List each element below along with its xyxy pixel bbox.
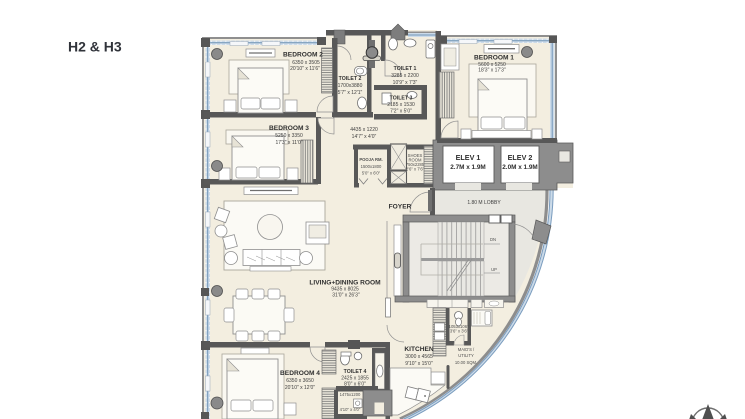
svg-text:31'0" x 26'3": 31'0" x 26'3" [332,293,360,299]
svg-text:UTILITY: UTILITY [458,353,474,358]
svg-text:1500x1800: 1500x1800 [361,164,382,169]
svg-text:3000 x 4565: 3000 x 4565 [405,354,433,360]
svg-text:POOJA RM.: POOJA RM. [359,157,382,162]
svg-text:17'3" x 11'0": 17'3" x 11'0" [275,140,302,146]
svg-text:FOYER: FOYER [389,204,412,211]
svg-text:14'7" x 4'0": 14'7" x 4'0" [352,134,377,140]
svg-text:10.00 SQM.: 10.00 SQM. [455,360,477,365]
svg-text:2.0M x 1.9M: 2.0M x 1.9M [502,164,538,171]
svg-text:5'7" x 12'1": 5'7" x 12'1" [338,90,363,96]
svg-text:1.80 M LOBBY: 1.80 M LOBBY [467,200,501,206]
svg-text:8'0" x 6'0": 8'0" x 6'0" [344,382,366,388]
svg-text:TOILET 1: TOILET 1 [394,66,417,72]
svg-text:TOILET 3: TOILET 3 [390,96,413,102]
svg-text:KITCHEN: KITCHEN [404,346,434,353]
svg-text:9'10" x 15'0": 9'10" x 15'0" [405,361,433,367]
svg-text:LIVING+DINING ROOM: LIVING+DINING ROOM [309,280,381,287]
svg-text:4'10" x 4'0": 4'10" x 4'0" [340,407,361,412]
svg-text:18'3" x 17'3": 18'3" x 17'3" [478,68,506,74]
svg-text:4435 x 1220: 4435 x 1220 [350,127,378,133]
svg-text:2'6" x 7'6": 2'6" x 7'6" [406,167,425,172]
svg-text:1475x1200: 1475x1200 [340,392,361,397]
svg-text:TOILET 2: TOILET 2 [339,76,362,82]
svg-text:1700x3880: 1700x3880 [338,83,363,89]
svg-text:20'10" x 12'0": 20'10" x 12'0" [285,385,315,391]
svg-text:BEDROOM 4: BEDROOM 4 [280,370,320,377]
svg-text:2185 x 1530: 2185 x 1530 [387,102,415,108]
svg-text:MAID'S /: MAID'S / [458,347,475,352]
svg-text:3'6" x 3'6": 3'6" x 3'6" [450,329,469,334]
svg-text:BEDROOM 1: BEDROOM 1 [474,55,514,62]
svg-text:BEDROOM 3: BEDROOM 3 [269,125,309,132]
svg-text:6350 x 3650: 6350 x 3650 [286,378,314,384]
svg-text:DN: DN [490,237,496,242]
svg-text:2.7M x 1.9M: 2.7M x 1.9M [450,164,486,171]
svg-text:ELEV 2: ELEV 2 [508,153,533,162]
svg-text:10'9" x 7'3": 10'9" x 7'3" [393,80,418,86]
svg-text:TOILET 4: TOILET 4 [344,369,367,375]
svg-text:20'10" x 11'6": 20'10" x 11'6" [290,66,320,72]
svg-text:5250 x 3350: 5250 x 3350 [275,133,303,139]
svg-text:BEDROOM 2: BEDROOM 2 [283,52,323,59]
svg-text:UP: UP [491,267,497,272]
svg-text:H2 & H3: H2 & H3 [68,39,122,55]
svg-text:7'2" x 5'0": 7'2" x 5'0" [390,109,412,115]
svg-text:5'0" x 6'0": 5'0" x 6'0" [362,171,381,176]
svg-text:3285 x 2200: 3285 x 2200 [391,73,419,79]
svg-text:ELEV 1: ELEV 1 [456,153,481,162]
